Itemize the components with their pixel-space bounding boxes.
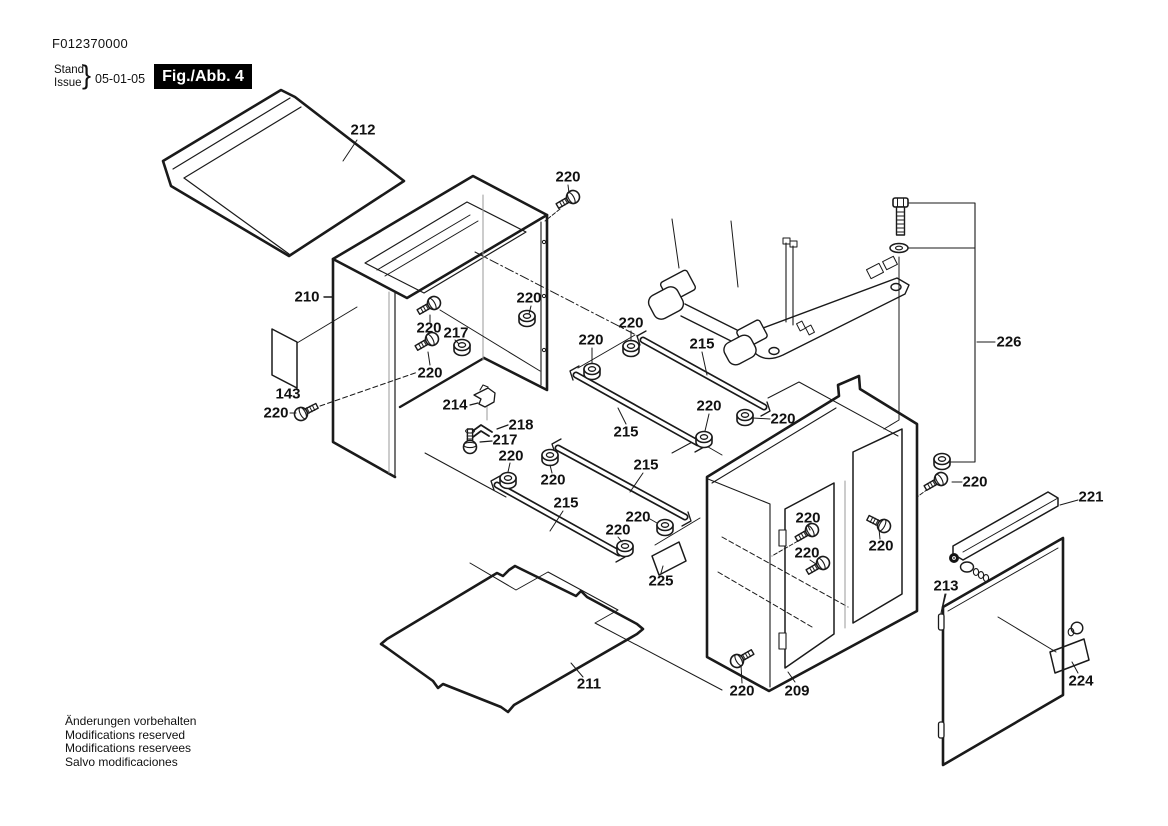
part-label-220-4: 220 bbox=[416, 321, 441, 336]
figure-title: Fig./Abb. 4 bbox=[162, 68, 244, 86]
figure-title-badge: Fig./Abb. 4 bbox=[154, 64, 252, 89]
part-label-220-25: 220 bbox=[605, 523, 630, 538]
issue-label: Issue bbox=[54, 77, 84, 90]
part-label-217-5: 217 bbox=[443, 326, 468, 341]
part-label-226-28: 226 bbox=[996, 335, 1021, 350]
lid-212 bbox=[163, 90, 404, 256]
plate-225 bbox=[652, 542, 686, 575]
revision-notice-fr: Modifications reservees bbox=[65, 742, 196, 756]
part-label-217-17: 217 bbox=[492, 433, 517, 448]
part-label-220-3: 220 bbox=[516, 291, 541, 306]
part-label-215-19: 215 bbox=[633, 458, 658, 473]
part-label-220-12: 220 bbox=[263, 406, 288, 421]
part-label-220-24: 220 bbox=[795, 511, 820, 526]
part-label-143-10: 143 bbox=[275, 387, 300, 402]
part-label-220-9: 220 bbox=[417, 366, 442, 381]
revision-notice-de: Änderungen vorbehalten bbox=[65, 715, 196, 729]
part-label-214-11: 214 bbox=[442, 398, 467, 413]
part-label-210-2: 210 bbox=[294, 290, 319, 305]
issue-date: 05-01-05 bbox=[95, 72, 145, 86]
part-label-225-31: 225 bbox=[648, 574, 673, 589]
revision-notice-en: Modifications reserved bbox=[65, 729, 196, 743]
stand-label: Stand bbox=[54, 64, 84, 77]
bolt-washer-226 bbox=[884, 198, 995, 462]
carriage-assembly bbox=[646, 219, 909, 368]
part-label-221-29: 221 bbox=[1078, 490, 1103, 505]
screw-217-vertical bbox=[464, 429, 477, 454]
part-label-215-16: 215 bbox=[613, 425, 638, 440]
part-label-220-26: 220 bbox=[868, 539, 893, 554]
bracket-214 bbox=[470, 385, 495, 420]
part-label-213-30: 213 bbox=[933, 579, 958, 594]
document-number: F012370000 bbox=[52, 36, 128, 51]
door-assembly bbox=[939, 492, 1083, 765]
part-label-220-27: 220 bbox=[794, 546, 819, 561]
part-label-220-8: 220 bbox=[578, 333, 603, 348]
brace-glyph: } bbox=[82, 60, 91, 91]
part-label-212-0: 212 bbox=[350, 123, 375, 138]
exploded-diagram bbox=[0, 0, 1168, 826]
part-label-220-34: 220 bbox=[729, 684, 754, 699]
stand-issue-label: Stand Issue bbox=[54, 64, 84, 89]
revision-notice: Änderungen vorbehalten Modifications res… bbox=[65, 715, 196, 769]
part-label-224-33: 224 bbox=[1068, 674, 1093, 689]
part-label-220-13: 220 bbox=[696, 399, 721, 414]
part-label-215-22: 215 bbox=[553, 496, 578, 511]
page: F012370000 Stand Issue } 05-01-05 Fig./A… bbox=[0, 0, 1168, 826]
part-label-218-15: 218 bbox=[508, 418, 533, 433]
part-label-220-1: 220 bbox=[555, 170, 580, 185]
part-label-220-20: 220 bbox=[540, 473, 565, 488]
part-label-220-21: 220 bbox=[962, 475, 987, 490]
part-label-220-18: 220 bbox=[498, 449, 523, 464]
part-label-211-32: 211 bbox=[577, 677, 601, 692]
part-label-220-6: 220 bbox=[618, 316, 643, 331]
part-label-209-35: 209 bbox=[784, 684, 809, 699]
revision-notice-es: Salvo modificaciones bbox=[65, 756, 196, 770]
part-label-220-14: 220 bbox=[770, 412, 795, 427]
part-label-215-7: 215 bbox=[689, 337, 714, 352]
plate-143 bbox=[272, 307, 357, 388]
